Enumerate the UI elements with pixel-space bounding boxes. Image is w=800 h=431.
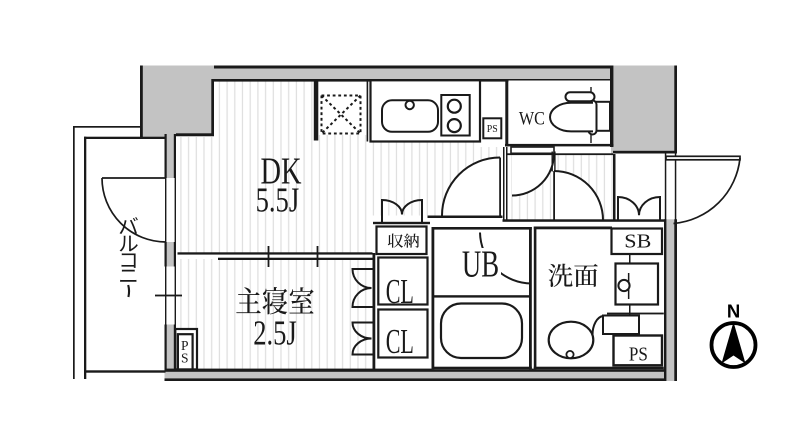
svg-text:SB: SB bbox=[624, 231, 651, 253]
svg-text:N: N bbox=[727, 301, 740, 322]
svg-text:ニ: ニ bbox=[118, 266, 139, 288]
svg-text:収納: 収納 bbox=[387, 230, 420, 252]
svg-text:PS: PS bbox=[629, 344, 648, 366]
svg-text:PS: PS bbox=[487, 124, 498, 135]
svg-text:S: S bbox=[181, 350, 189, 365]
svg-text:CL: CL bbox=[386, 273, 414, 311]
svg-text:UB: UB bbox=[462, 244, 499, 286]
svg-text:WC: WC bbox=[519, 109, 545, 130]
svg-text:洗面: 洗面 bbox=[548, 257, 599, 293]
svg-text:CL: CL bbox=[386, 323, 414, 361]
svg-text:5.5J: 5.5J bbox=[256, 181, 300, 220]
svg-text:2.5J: 2.5J bbox=[253, 314, 297, 353]
